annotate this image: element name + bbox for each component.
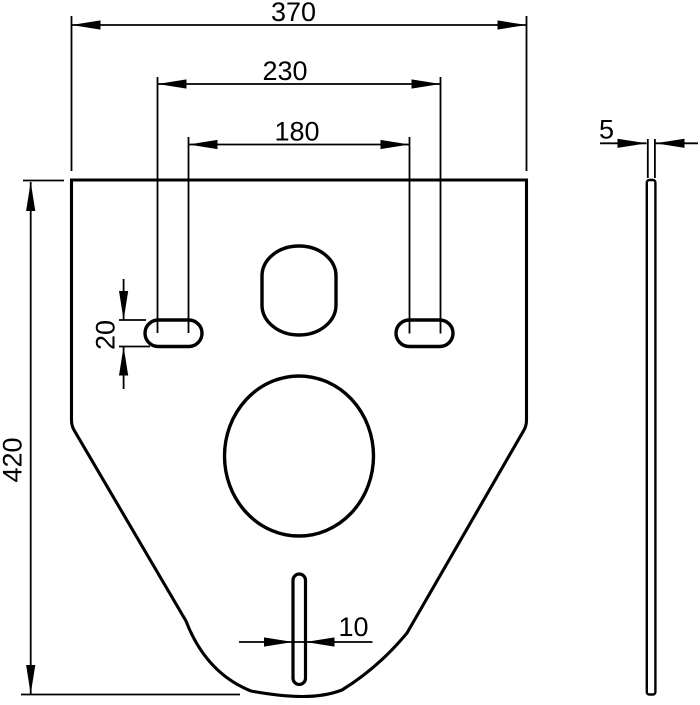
svg-text:20: 20 bbox=[91, 320, 121, 350]
svg-text:5: 5 bbox=[599, 115, 614, 145]
svg-text:180: 180 bbox=[274, 117, 319, 147]
svg-text:420: 420 bbox=[0, 437, 28, 482]
svg-text:230: 230 bbox=[262, 56, 307, 86]
svg-text:10: 10 bbox=[338, 612, 368, 642]
svg-text:370: 370 bbox=[271, 0, 316, 27]
